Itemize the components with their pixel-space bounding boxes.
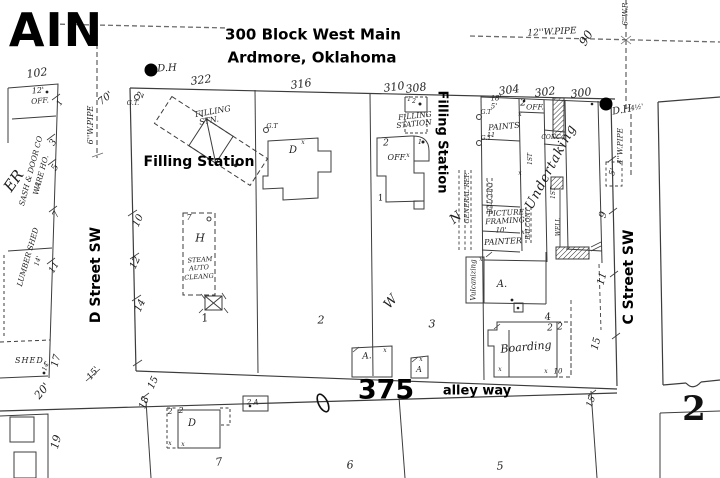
gas-tank-label-3: G.T [481,110,492,116]
building-label-office-102: OFF. [31,96,49,105]
lot-number-4: 4 [544,313,552,324]
building-flag-h: H [195,233,205,244]
building-flag-a: A. [362,352,372,362]
filling-station-annotation-2: Filling Station [436,91,449,194]
hydrant-label-west: D.H [157,63,177,74]
x-mark: x [168,441,171,447]
map-title-line2: Ardmore, Oklahoma [228,51,397,66]
x-mark: x [498,367,501,373]
lot-number-3: 3 [429,319,436,330]
dimension-5ft: 5' [491,104,497,111]
building-label-well: WELL [556,218,562,237]
story-count: 2 [557,324,563,333]
floor-note-1st-b: 1ST [551,187,557,199]
x-mark: x [419,357,422,363]
address-316: 316 [290,77,312,91]
main-street-label-partial: AIN [9,7,103,53]
lot-number-5: 5 [496,460,504,472]
building-flag-dwelling: D [188,419,196,429]
x-mark: x [406,153,409,159]
floor-note-1st-a: 1ST [528,153,534,165]
building-label-framing: FRAMING [485,216,525,226]
building-label-balcony-2: BALCONY [526,208,532,239]
address-102: 102 [26,66,48,80]
pipe-note-4in: 4''W.PIPE [616,128,624,164]
building-label-office-302: OFF. [526,103,544,111]
story-count: 2 [412,99,416,105]
dimension-10: 10 [554,369,563,376]
edge-number-19: 19 [49,434,63,450]
building-flag-a: A [416,366,422,374]
x-mark: x [301,140,304,146]
building-label-cleaning: CLEANG [184,273,214,282]
address-300: 300 [570,86,592,100]
story-count: 1 [418,139,422,146]
dimension-10ft: 10' [496,228,507,235]
map-title-line1: 300 Block West Main [225,28,401,43]
map-linework [0,0,720,478]
story-count: 1 [407,97,411,103]
dimension-12ft: 12' [31,86,44,95]
dimension-11: 11 [487,132,495,139]
lot-number-7: 7 [215,456,223,468]
sanborn-map: AIN 300 Block West Main Ardmore, Oklahom… [0,0,720,478]
building-flag-a: A [253,400,258,407]
x-mark: x [518,171,521,177]
story-count: 2 [247,398,252,406]
building-label-office-310: OFF. [388,154,407,162]
x-mark: x [544,369,547,375]
story-count: 2 [167,408,172,416]
x-mark: x [521,230,524,236]
building-flag-a: A. [497,280,507,290]
story-count: 7 [186,214,191,222]
story-count: 2 [520,100,526,109]
story-count: 2 [547,325,553,334]
c-street-label: C Street SW [622,230,636,325]
dimension-18ft: 18' [491,96,502,103]
building-label-vulcanizing: Vulcanizing [471,259,478,300]
address-308: 308 [405,81,427,95]
building-flag-dwelling: D [289,146,297,156]
lot-number-2: 2 [318,315,325,326]
story-count: 2 [383,140,389,149]
alley-way-label: alley way [443,385,511,398]
pipe-note-6in: 6''W.PIPE [87,106,95,145]
pipe-note-6in-short: 6''W.P. [621,2,629,26]
address-322: 322 [190,73,212,87]
gas-tank-label-2: G.T [266,123,277,130]
filling-station-annotation-1: Filling Station [144,155,255,169]
building-label-general-repair: GENERAL REP. [464,172,471,223]
gas-tank-label-1: G.T. [127,100,139,107]
x-mark: x [383,348,386,354]
x-mark: x [518,112,521,118]
story-count: 2 [178,407,183,415]
x-mark: x [181,442,184,448]
adjacent-sheet-number: 2 [682,392,706,426]
lot-number-6: 6 [346,459,354,471]
d-street-label: D Street SW [89,227,103,323]
address-302: 302 [534,85,556,99]
block-number: 375 [358,377,414,404]
building-label-auto: AUTO [189,264,209,272]
address-310: 310 [383,80,405,94]
x-mark: x [479,257,482,263]
